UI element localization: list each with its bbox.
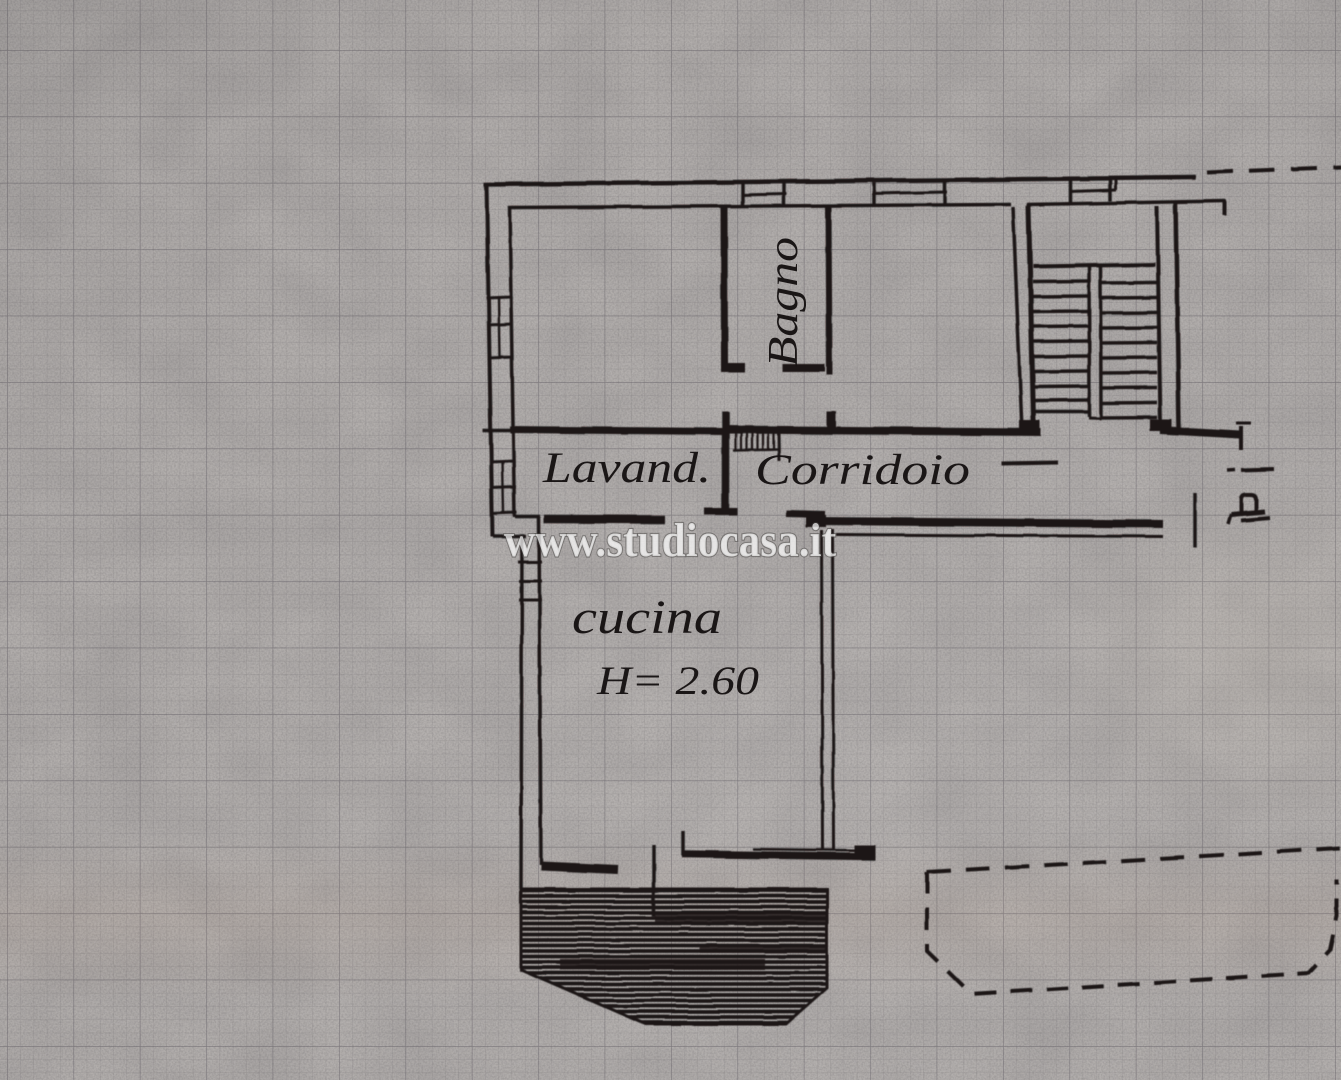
svg-text:www.studiocasa.it: www.studiocasa.it bbox=[504, 514, 836, 567]
svg-text:H= 2.60: H= 2.60 bbox=[596, 658, 759, 703]
svg-text:Lavand.: Lavand. bbox=[542, 445, 711, 492]
svg-text:Bagno: Bagno bbox=[761, 237, 807, 367]
svg-text:Corridoio: Corridoio bbox=[755, 447, 970, 494]
svg-text:cucina: cucina bbox=[572, 591, 722, 644]
